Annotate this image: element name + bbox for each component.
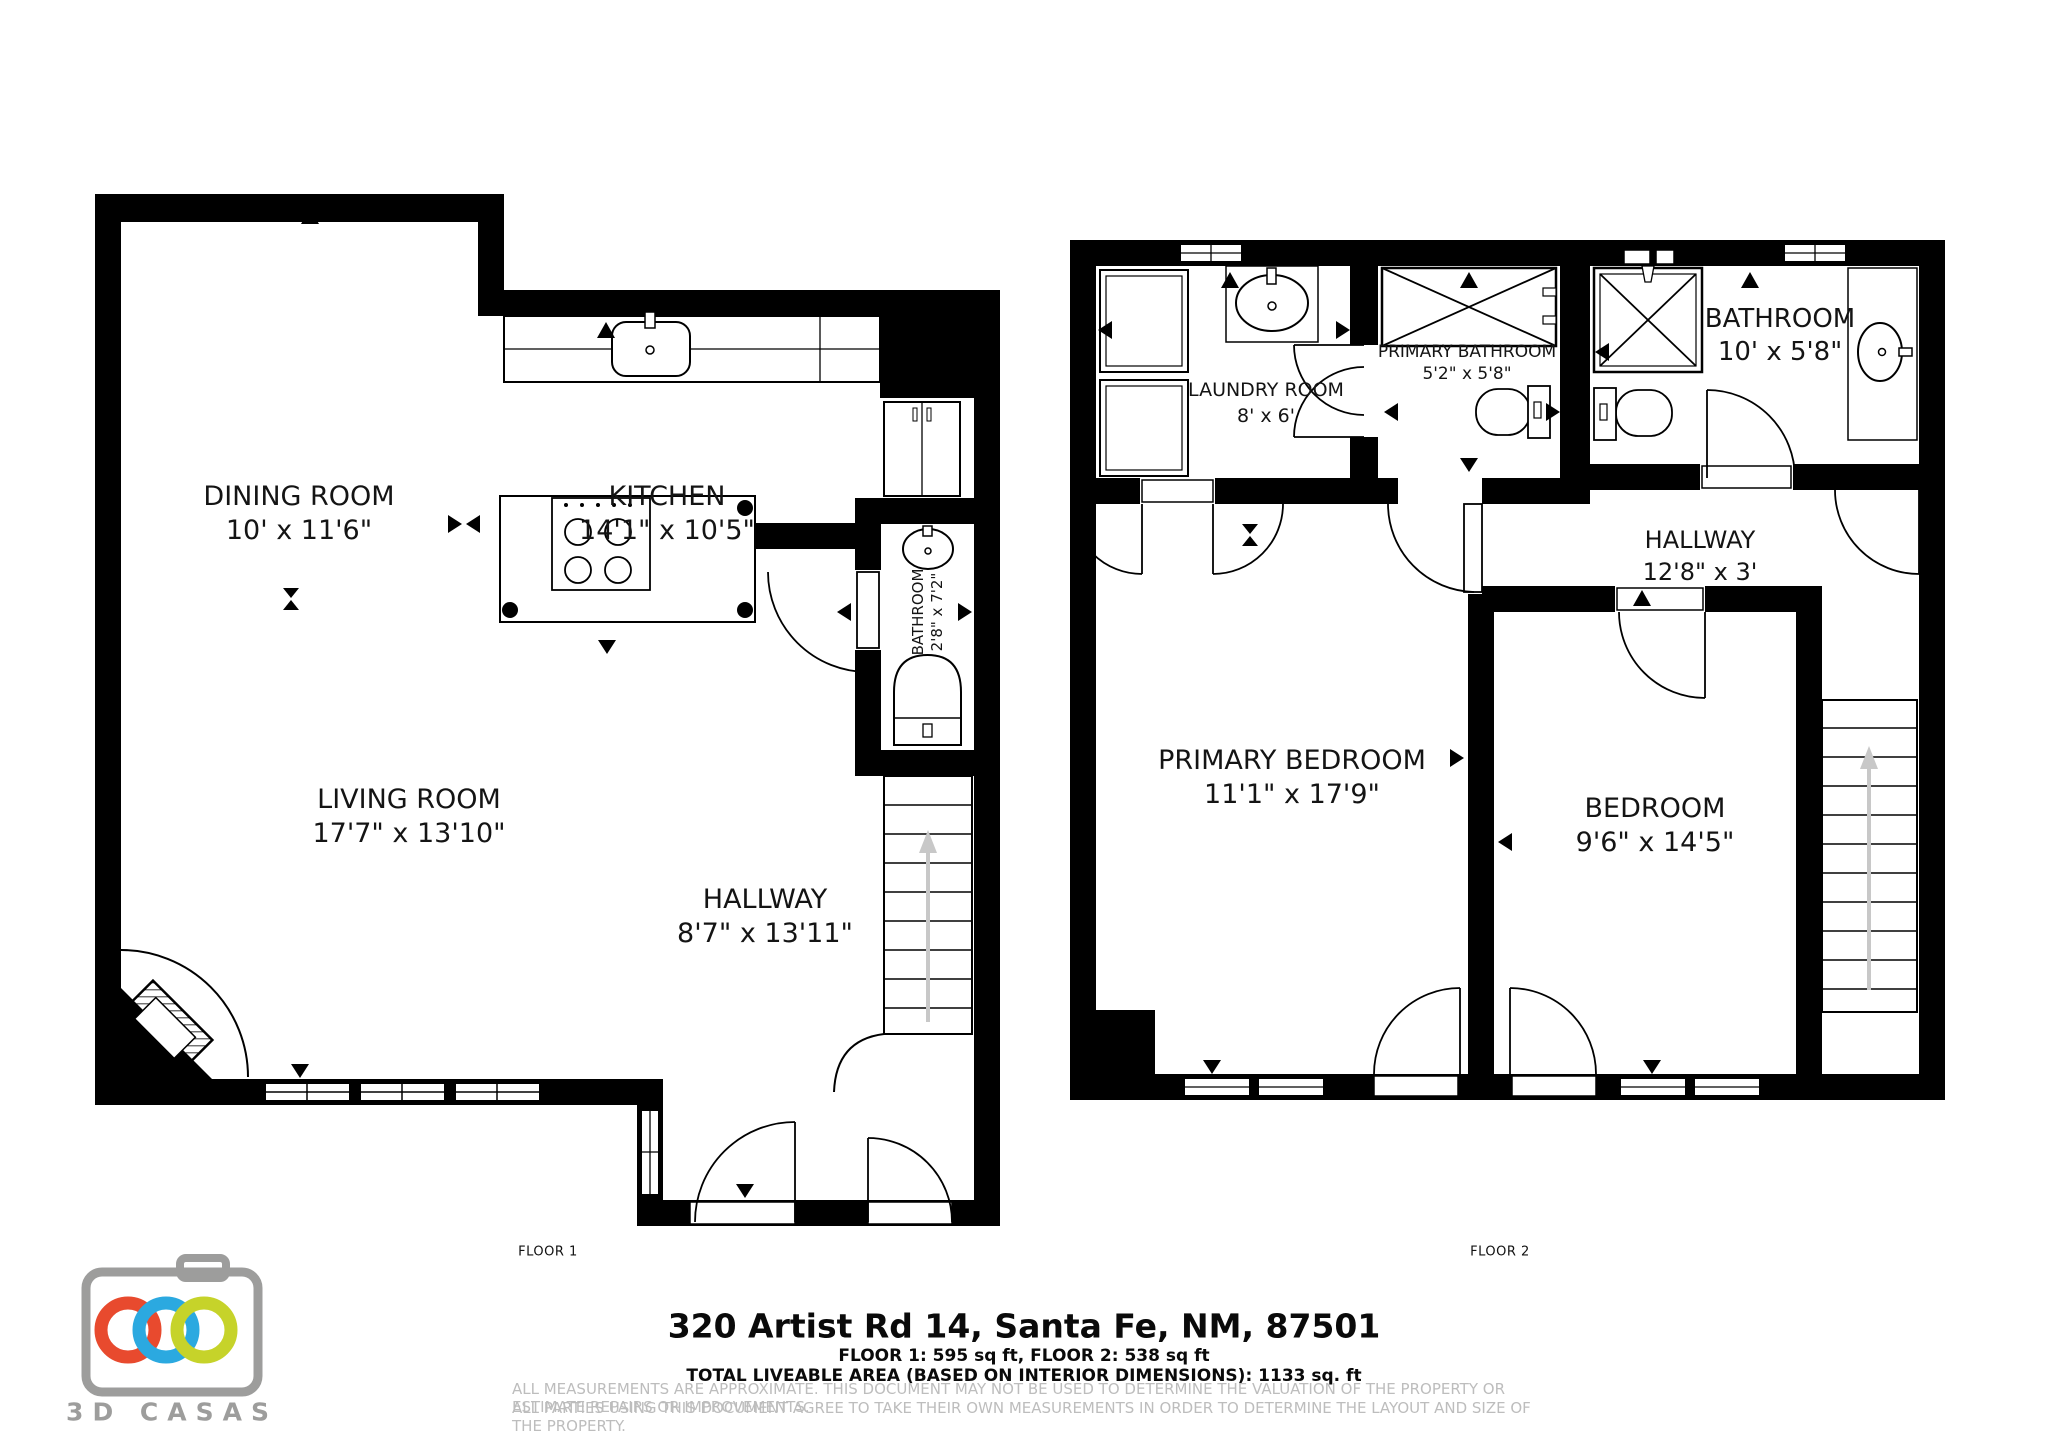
- bathroom2-toilet-icon: [1594, 388, 1672, 440]
- room-label-primary-bathroom: PRIMARY BATHROOM 5'2" x 5'8": [1378, 341, 1556, 385]
- floorplan-drawing: [0, 0, 2048, 1449]
- room-label-kitchen: KITCHEN 14'1" x 10'5": [579, 480, 755, 548]
- fridge-icon: [884, 402, 960, 496]
- floor1-caption: FLOOR 1: [518, 1245, 578, 1260]
- floor2-caption: FLOOR 2: [1470, 1245, 1530, 1260]
- kitchen-counter: [504, 316, 880, 382]
- bathroom1-sink-icon: [903, 526, 953, 569]
- room-label-hallway2: HALLWAY 12'8" x 3': [1643, 524, 1758, 588]
- property-address: 320 Artist Rd 14, Santa Fe, NM, 87501: [668, 1307, 1381, 1346]
- room-label-bathroom1: BATHROOM 2'8" x 7'2": [909, 569, 947, 656]
- laundry-sink-icon: [1226, 266, 1318, 342]
- logo-ring-right: [177, 1303, 231, 1357]
- room-label-bathroom2: BATHROOM 10' x 5'8": [1705, 303, 1855, 369]
- kitchen-sink-icon: [612, 312, 690, 376]
- stairs-up: [834, 776, 972, 1092]
- floorplan-sheet: DINING ROOM 10' x 11'6" KITCHEN 14'1" x …: [0, 0, 2048, 1449]
- living-room-windows: [265, 1083, 540, 1101]
- logo-text: 3D CASAS: [66, 1398, 278, 1427]
- room-label-hallway1: HALLWAY 8'7" x 13'11": [677, 883, 853, 951]
- stairs-down: [1822, 700, 1917, 1012]
- bathroom2-shower-icon: [1594, 250, 1702, 372]
- room-label-living: LIVING ROOM 17'7" x 13'10": [312, 783, 505, 851]
- entry-sidelight-window: [641, 1110, 659, 1195]
- primary-bedroom-door: [1388, 504, 1482, 592]
- washer-dryer-icons: [1100, 270, 1188, 476]
- hallway-end-door: [1835, 490, 1919, 574]
- primary-bath-toilet-icon: [1476, 386, 1550, 438]
- fireplace-icon: [118, 950, 248, 1079]
- room-label-primary-bedroom: PRIMARY BEDROOM 11'1" x 17'9": [1158, 744, 1426, 812]
- room-label-dining: DINING ROOM 10' x 11'6": [203, 480, 394, 548]
- disclaimer-line2: ALL PARTIES USING THIS DOCUMENT AGREE TO…: [512, 1399, 1536, 1435]
- entry-door: [690, 1122, 795, 1224]
- bedroom-door: [1617, 588, 1705, 698]
- bathroom2-vanity-sink-icon: [1848, 268, 1917, 440]
- floor1-plan: [95, 194, 1000, 1226]
- floor-areas: FLOOR 1: 595 sq ft, FLOOR 2: 538 sq ft: [838, 1346, 1209, 1366]
- bathtub-icon: [894, 655, 961, 745]
- room-label-bedroom: BEDROOM 9'6" x 14'5": [1576, 792, 1735, 860]
- bathroom2-door: [1702, 390, 1795, 488]
- logo-3dcasas: [86, 1258, 258, 1392]
- room-label-laundry: LAUNDRY ROOM 8' x 6': [1188, 377, 1344, 429]
- side-door: [868, 1138, 952, 1224]
